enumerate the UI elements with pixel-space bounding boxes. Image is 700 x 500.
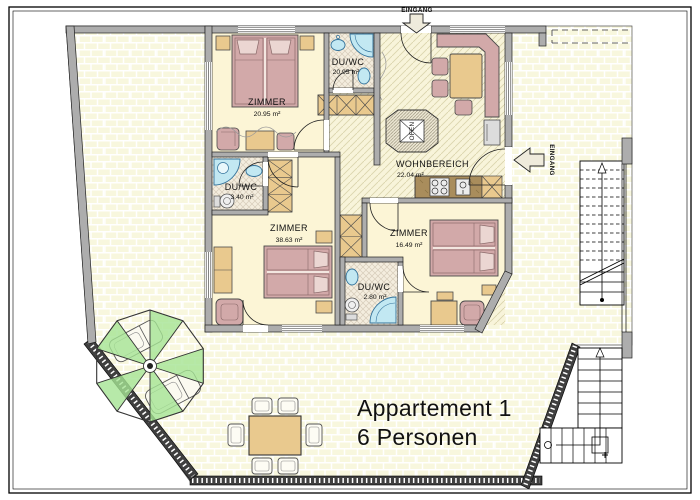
chair-icon [432,80,448,97]
wohnbereich-area: 22.04 m² [397,172,425,179]
cabinet-icon [484,120,500,145]
nightstand-icon [316,231,332,243]
wardrobe-icon [268,160,292,212]
duwc2-name: DU/WC [225,182,258,192]
zimmer2-area: 38.63 m² [276,237,304,244]
kitchen-sink-icon [456,179,470,195]
stove-top-icon [430,178,449,196]
chair-icon [455,100,472,115]
cabinet-x-icon [482,176,502,198]
duwc2-area: 3.40 m² [230,194,254,201]
zimmer2-name: ZIMMER [270,223,308,233]
duwc1-area: 20.95 m² [333,69,361,76]
shelf-icon [437,292,453,300]
armchair-icon [216,299,243,325]
wohnbereich-name: WOHNBEREICH [396,159,469,169]
entrance-top-label: EINGANG [401,7,433,14]
chair-icon [432,58,448,75]
toilet-icon [358,68,370,84]
double-bed-icon [264,246,332,298]
nightstand-icon [316,301,332,313]
wardrobe-icon [340,215,362,258]
title-line2: 6 Personen [357,424,478,450]
zimmer3-name: ZIMMER [390,228,428,238]
duwc3-area: 2.80 m² [363,294,387,301]
nightstand-icon [300,36,314,50]
toilet-icon [345,298,359,320]
zimmer3-area: 16.49 m² [396,242,424,249]
duwc1-name: DU/WC [332,57,365,67]
dining-table-icon [450,54,482,98]
floor-plan-page: OFEN [0,0,700,500]
title-line1: Appartement 1 [357,395,512,421]
side-table-icon [246,131,274,150]
tiled-stove-icon: OFEN [386,110,438,152]
kitchen-counter-icon [415,176,502,198]
entrance-side-label: EINGANG [548,144,555,176]
zimmer1-area: 20.95 m² [254,111,282,118]
wardrobe-icon [214,247,232,293]
zimmer1-name: ZIMMER [248,97,286,107]
floor-plan-drawing: OFEN [0,0,700,500]
sink-icon [346,269,358,285]
double-bed-icon [430,220,498,276]
desk-icon [431,301,457,326]
stove-label: OFEN [409,122,416,141]
sink-icon [331,40,345,51]
duwc3-name: DU/WC [358,282,391,292]
nightstand-icon [216,36,230,50]
